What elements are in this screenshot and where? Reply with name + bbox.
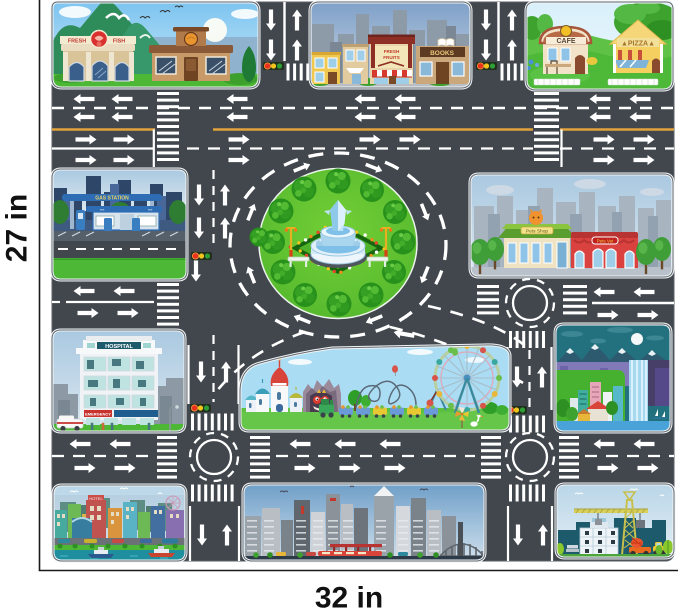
svg-text:32 in: 32 in bbox=[315, 582, 383, 613]
svg-text:Pets Vet: Pets Vet bbox=[597, 239, 615, 244]
svg-text:GAS STATION: GAS STATION bbox=[95, 196, 129, 202]
svg-text:FRUITS: FRUITS bbox=[383, 55, 400, 60]
svg-text:27 in: 27 in bbox=[1, 194, 34, 262]
svg-text:HOSPITAL: HOSPITAL bbox=[105, 344, 133, 350]
svg-text:▲PIZZA▲: ▲PIZZA▲ bbox=[621, 41, 655, 48]
svg-text:FISH: FISH bbox=[113, 39, 125, 45]
svg-text:FRESH: FRESH bbox=[384, 49, 400, 54]
svg-text:««: «« bbox=[100, 207, 105, 212]
svg-text:»»: »» bbox=[148, 207, 153, 212]
svg-text:FRESH: FRESH bbox=[68, 39, 86, 45]
svg-text:BOOKS: BOOKS bbox=[430, 50, 455, 57]
svg-text:CAFE: CAFE bbox=[556, 38, 575, 45]
svg-text:Pets Shop: Pets Shop bbox=[526, 229, 548, 235]
svg-text:EMERGENCY: EMERGENCY bbox=[85, 412, 111, 417]
